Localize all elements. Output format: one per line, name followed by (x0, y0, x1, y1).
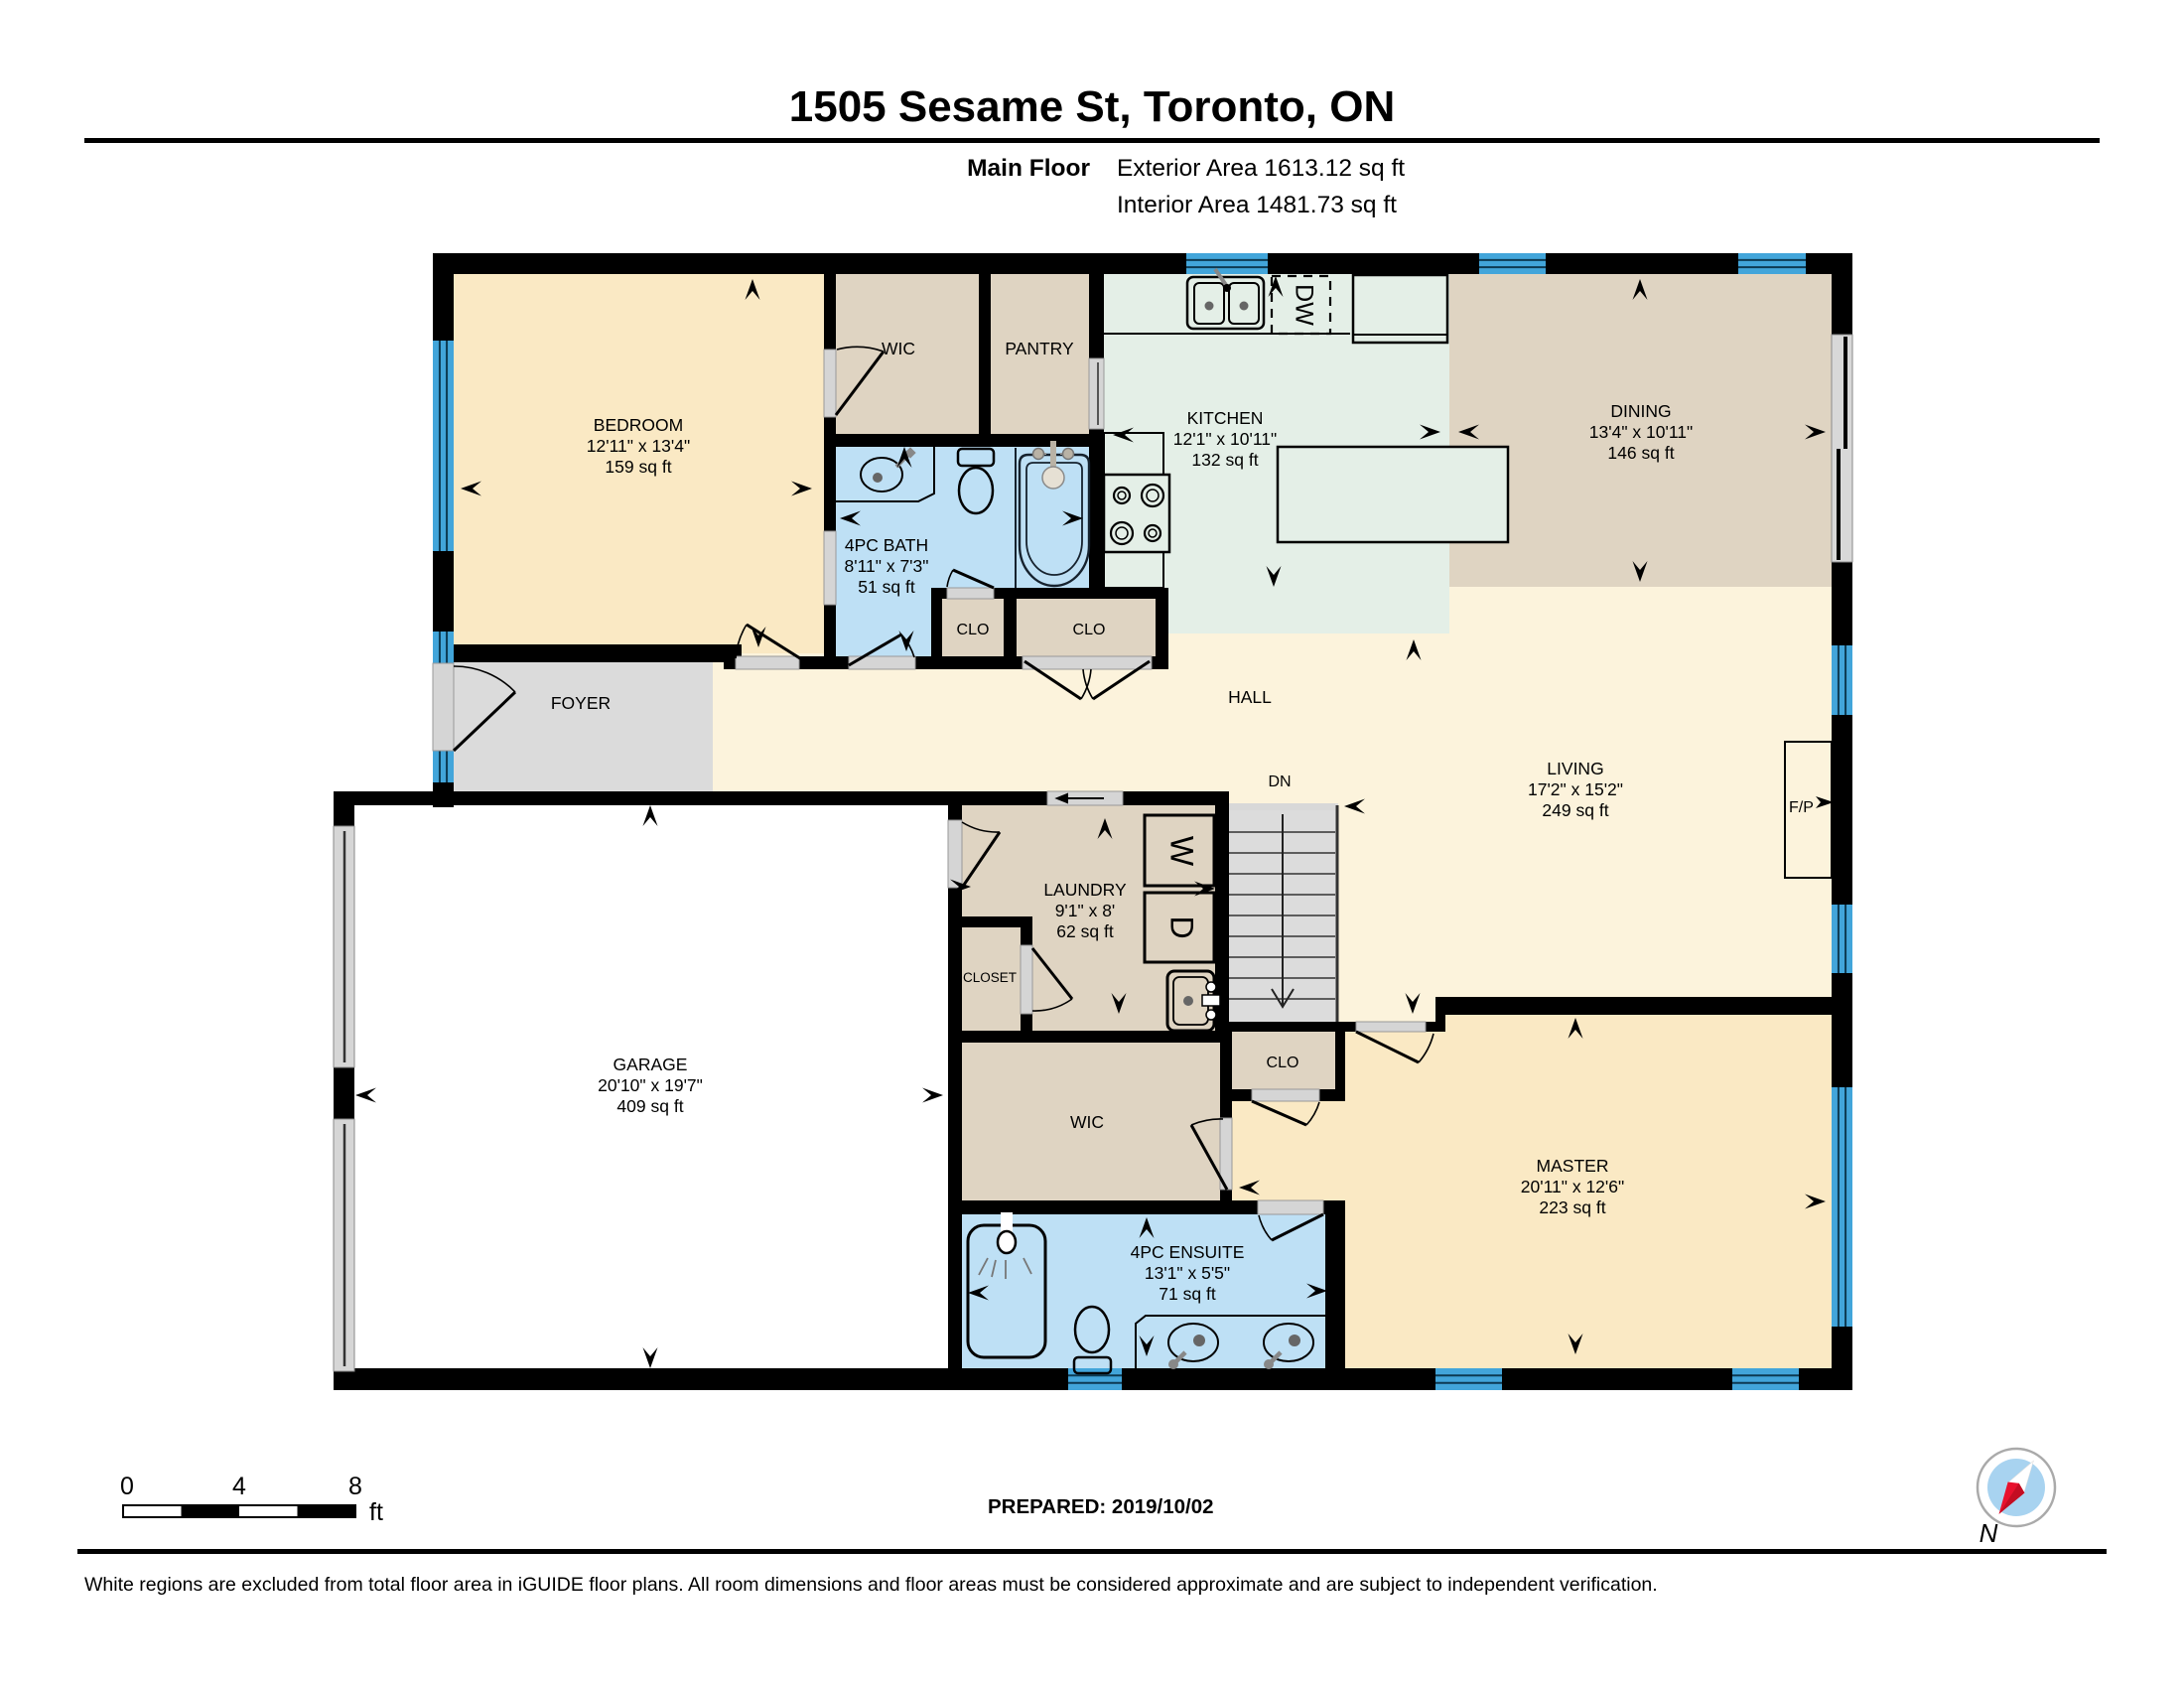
svg-text:62 sq ft: 62 sq ft (1056, 921, 1114, 941)
svg-text:BEDROOM: BEDROOM (594, 415, 683, 435)
svg-text:D: D (1164, 915, 1200, 938)
svg-text:12'11" x 13'4": 12'11" x 13'4" (587, 436, 690, 456)
svg-text:CLO: CLO (957, 622, 990, 638)
svg-text:GARAGE: GARAGE (614, 1055, 688, 1074)
svg-text:CLOSET: CLOSET (963, 970, 1017, 985)
svg-text:Main Floor: Main Floor (967, 155, 1090, 182)
svg-text:20'10" x 19'7": 20'10" x 19'7" (598, 1075, 703, 1095)
svg-text:ft: ft (369, 1498, 383, 1526)
svg-text:249 sq ft: 249 sq ft (1542, 800, 1608, 820)
svg-text:0: 0 (120, 1473, 134, 1500)
svg-text:146 sq ft: 146 sq ft (1607, 443, 1674, 463)
svg-text:CLO: CLO (1267, 1055, 1299, 1071)
svg-text:17'2" x 15'2": 17'2" x 15'2" (1528, 779, 1623, 799)
svg-text:Exterior Area 1613.12 sq ft: Exterior Area 1613.12 sq ft (1117, 155, 1405, 182)
svg-text:8: 8 (348, 1473, 362, 1500)
svg-text:132 sq ft: 132 sq ft (1191, 450, 1258, 470)
svg-text:20'11" x 12'6": 20'11" x 12'6" (1521, 1177, 1624, 1196)
svg-text:W: W (1164, 836, 1200, 867)
svg-text:N: N (1979, 1518, 1998, 1548)
svg-text:DINING: DINING (1610, 401, 1671, 421)
svg-text:HALL: HALL (1228, 687, 1272, 707)
svg-text:13'1" x 5'5": 13'1" x 5'5" (1145, 1263, 1230, 1283)
svg-text:159 sq ft: 159 sq ft (605, 457, 671, 477)
svg-text:9'1" x 8': 9'1" x 8' (1055, 901, 1116, 920)
svg-text:4PC BATH: 4PC BATH (845, 535, 928, 555)
svg-text:LAUNDRY: LAUNDRY (1043, 880, 1127, 900)
svg-text:LIVING: LIVING (1547, 759, 1603, 778)
svg-text:71 sq ft: 71 sq ft (1159, 1284, 1216, 1304)
svg-text:CLO: CLO (1073, 622, 1106, 638)
svg-text:409 sq ft: 409 sq ft (616, 1096, 683, 1116)
svg-text:4PC ENSUITE: 4PC ENSUITE (1131, 1242, 1245, 1262)
svg-text:1505 Sesame St, Toronto, ON: 1505 Sesame St, Toronto, ON (789, 82, 1395, 131)
svg-text:51 sq ft: 51 sq ft (858, 577, 915, 597)
svg-text:4: 4 (232, 1473, 246, 1500)
svg-text:DW: DW (1290, 284, 1317, 326)
svg-text:PREPARED: 2019/10/02: PREPARED: 2019/10/02 (988, 1495, 1214, 1518)
svg-text:FOYER: FOYER (551, 693, 611, 713)
svg-text:DN: DN (1268, 774, 1291, 790)
svg-text:PANTRY: PANTRY (1005, 339, 1074, 358)
svg-text:F/P: F/P (1789, 799, 1814, 816)
svg-text:8'11" x 7'3": 8'11" x 7'3" (845, 556, 929, 576)
svg-text:Interior Area 1481.73 sq ft: Interior Area 1481.73 sq ft (1117, 192, 1397, 218)
svg-text:MASTER: MASTER (1537, 1156, 1609, 1176)
svg-text:223 sq ft: 223 sq ft (1539, 1197, 1605, 1217)
svg-text:White regions are excluded fro: White regions are excluded from total fl… (84, 1574, 1658, 1596)
svg-text:12'1" x 10'11": 12'1" x 10'11" (1173, 429, 1277, 449)
svg-text:WIC: WIC (882, 339, 915, 358)
svg-text:13'4" x 10'11": 13'4" x 10'11" (1589, 422, 1693, 442)
svg-text:WIC: WIC (1070, 1112, 1104, 1132)
svg-text:KITCHEN: KITCHEN (1187, 408, 1264, 428)
